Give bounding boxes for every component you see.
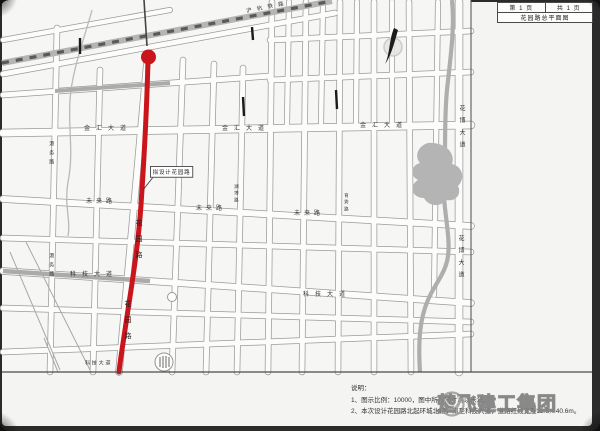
side-street-label: 湖博路 [233, 184, 238, 204]
title-block-row-pages: 第 1 页 共 1 页 [498, 3, 592, 13]
gangwu-road-label: 港务路 [48, 253, 53, 280]
jinhui-avenue-label: 金汇大道 [222, 126, 270, 132]
huayuan-road-label: 花园路 [135, 219, 142, 267]
junction-circle [168, 293, 177, 302]
road [321, 2, 323, 124]
proposed-road-tag-box: 拟设计花园路 [150, 166, 193, 178]
huayuan-road-label: 花园路 [124, 300, 131, 348]
route-start-dot [141, 50, 156, 65]
sheet-number-cell: 第 1 页 [498, 3, 546, 12]
title-block: 第 1 页 共 1 页 花园路总平面图 [497, 2, 593, 23]
drawing-title: 花园路总平面图 [498, 13, 592, 22]
notes-block: 说明： 1、图示比例：10000，图中所注尺寸均以米计。 2、本次设计花园路北起… [351, 383, 580, 418]
huabo-avenue-label: 花博大道 [458, 105, 464, 153]
title-block-row-title: 花园路总平面图 [498, 13, 592, 22]
road [338, 2, 340, 372]
sheet-total-cell: 共 1 页 [546, 3, 593, 12]
notes-heading: 说明： [351, 383, 580, 395]
huabo-avenue-label: 花博大道 [457, 235, 463, 283]
weilai-road-label: 未来路 [86, 199, 116, 205]
side-street-label: 育秀路 [343, 193, 348, 213]
scanned-road-plan-photo: 沪杭铁路 金汇大道 金汇大道 金汇大道 未来路 未来路 未来路 科技大道 科技大… [0, 0, 600, 431]
weilai-road-label: 未来路 [294, 211, 324, 217]
keji-avenue-label: 科技大道 [303, 292, 351, 298]
roundabout [155, 353, 173, 371]
jinhui-avenue-label: 金汇大道 [360, 123, 408, 129]
keji-avenue-label: 科技大道 [70, 272, 118, 278]
road [409, 2, 411, 372]
keji-avenue-label: 科技大道 [85, 361, 112, 366]
road [356, 2, 357, 124]
gangwu-road-label: 港务路 [48, 141, 53, 168]
jinhui-avenue-label: 金汇大道 [84, 126, 132, 132]
notes-line-2: 2、本次设计花园路北起环城北路，南至科技大道，道路红线宽度32.5／40.6m。 [351, 406, 580, 418]
road [287, 2, 289, 124]
notes-line-1: 1、图示比例：10000，图中所注尺寸均以米计。 [351, 395, 580, 407]
weilai-road-label: 未来路 [196, 206, 226, 212]
